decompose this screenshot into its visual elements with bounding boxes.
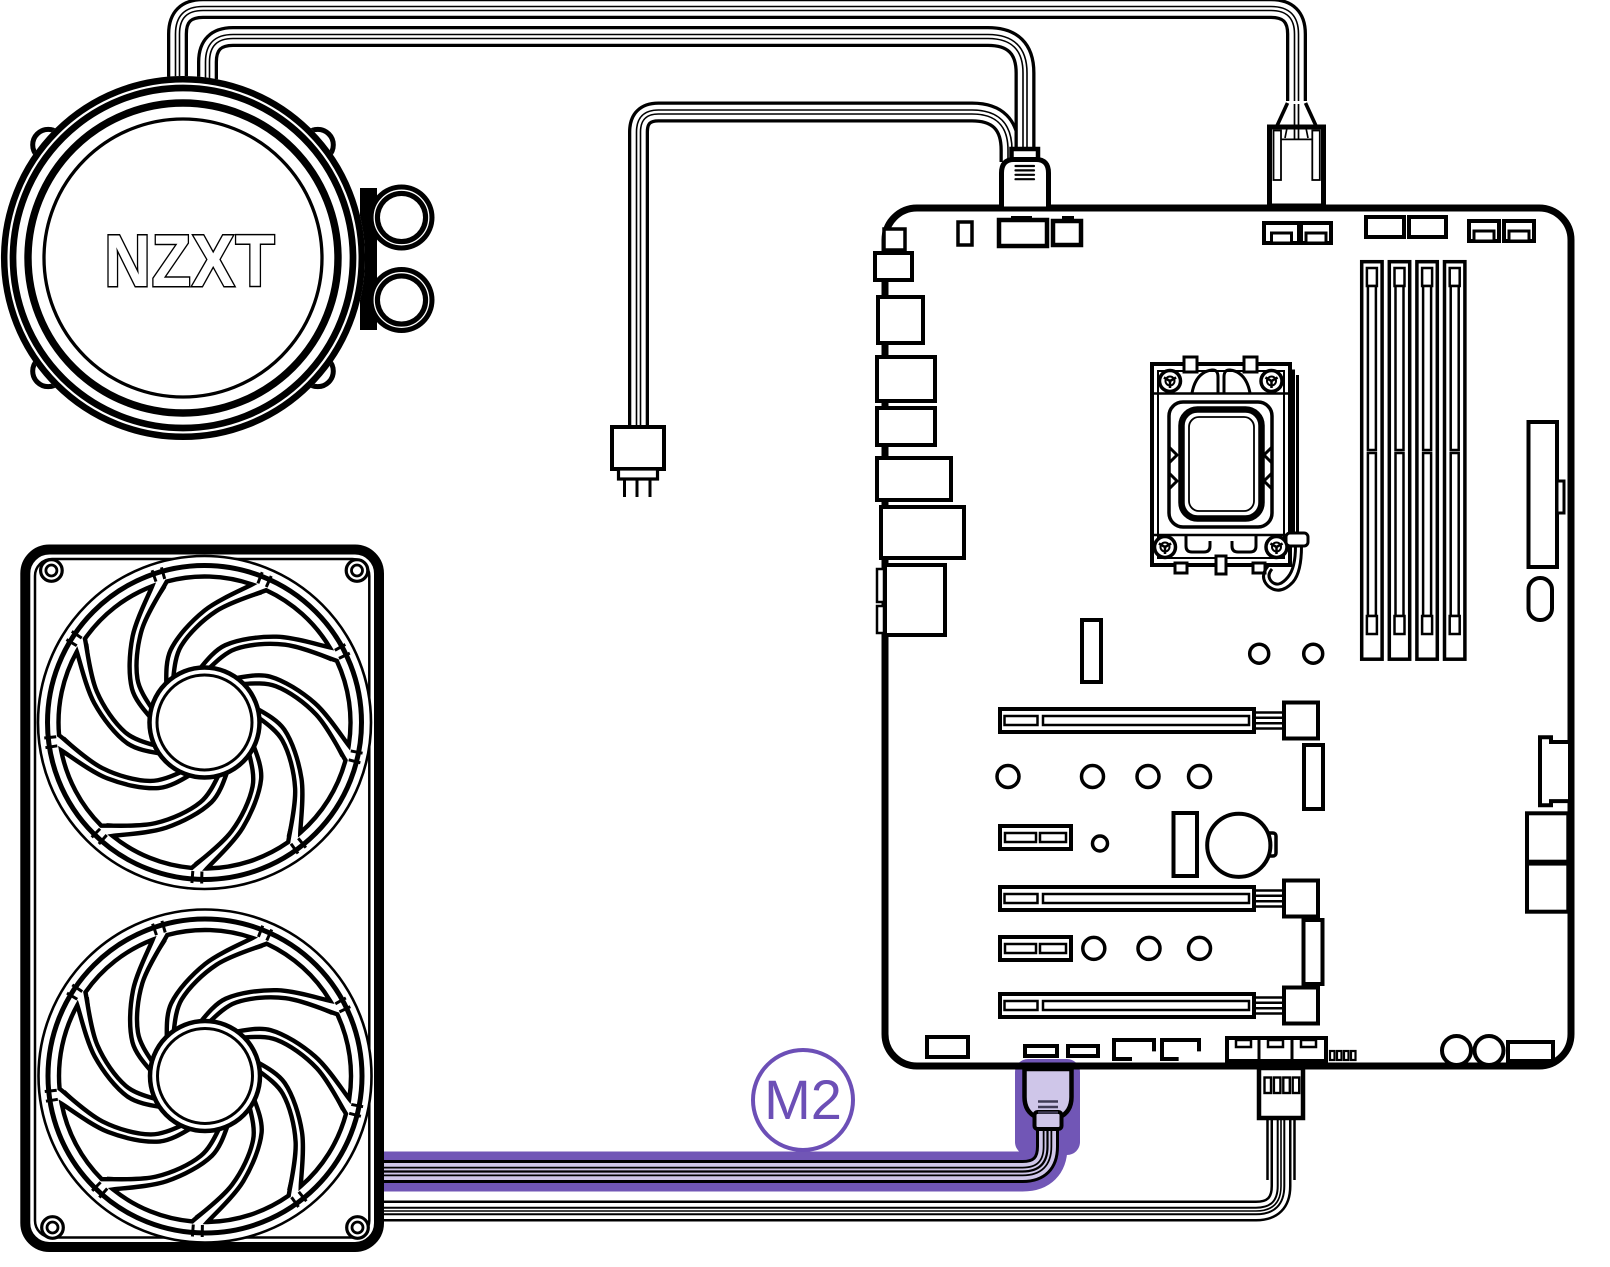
svg-text:NZXT: NZXT bbox=[104, 220, 275, 302]
svg-text:M2: M2 bbox=[764, 1068, 842, 1131]
